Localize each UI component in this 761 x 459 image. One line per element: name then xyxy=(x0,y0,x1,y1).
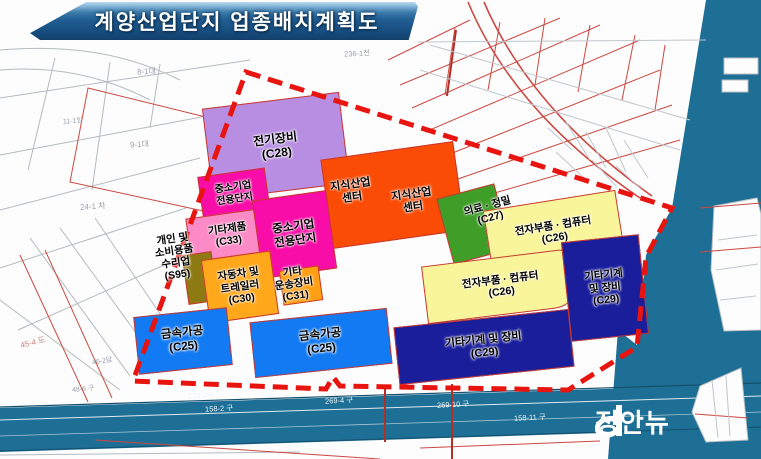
complex-boundary-line xyxy=(133,72,672,390)
zoning-map-canvas: 전기장비 (C28) 지식산업 센터 지식산업 센터 중소기업 전용단지 기타제… xyxy=(0,0,761,459)
title-banner: 계양산업단지 업종배치계획도 xyxy=(30,2,418,40)
news-watermark: 정안뉴 xyxy=(595,403,670,440)
page-title: 계양산업단지 업종배치계획도 xyxy=(69,6,380,36)
complex-boundary-layer xyxy=(0,0,761,459)
jeongan-news-logo-icon xyxy=(595,403,627,439)
zone-label-s95: 개인 및 소비용품 수리업 (S95) xyxy=(139,229,211,286)
